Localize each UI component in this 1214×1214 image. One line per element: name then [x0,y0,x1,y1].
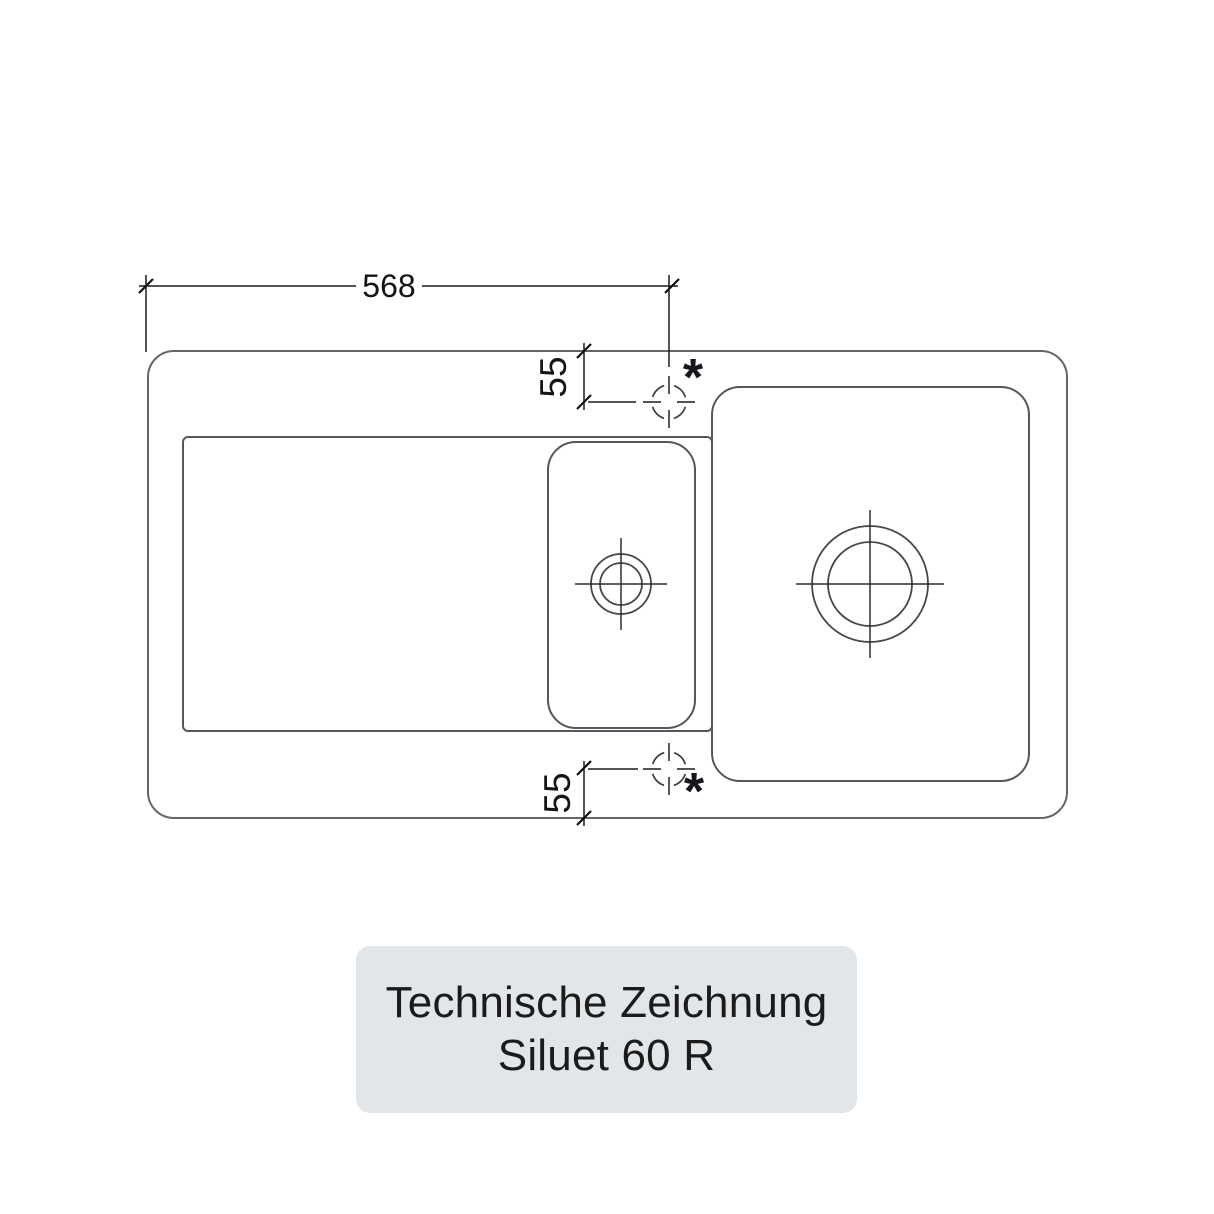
dim-568-label: 568 [362,268,415,304]
tap-hole-top-asterisk: * [683,349,704,407]
dimension-bottom-55: 55 [537,761,638,826]
caption-model: Siluet 60 R [498,1030,715,1083]
dim-55-bottom-label: 55 [537,772,578,813]
large-bowl-drain [796,510,944,658]
caption-card: Technische Zeichnung Siluet 60 R [356,946,857,1113]
dimension-width-568: 568 [139,268,679,367]
dim-55-top-label: 55 [533,356,574,397]
technical-drawing-page: * * 568 55 [0,0,1214,1214]
dimension-top-55: 55 [533,343,636,410]
tap-hole-bottom-asterisk: * [684,763,705,821]
small-bowl-drain [575,538,667,630]
caption-title: Technische Zeichnung [386,977,828,1030]
